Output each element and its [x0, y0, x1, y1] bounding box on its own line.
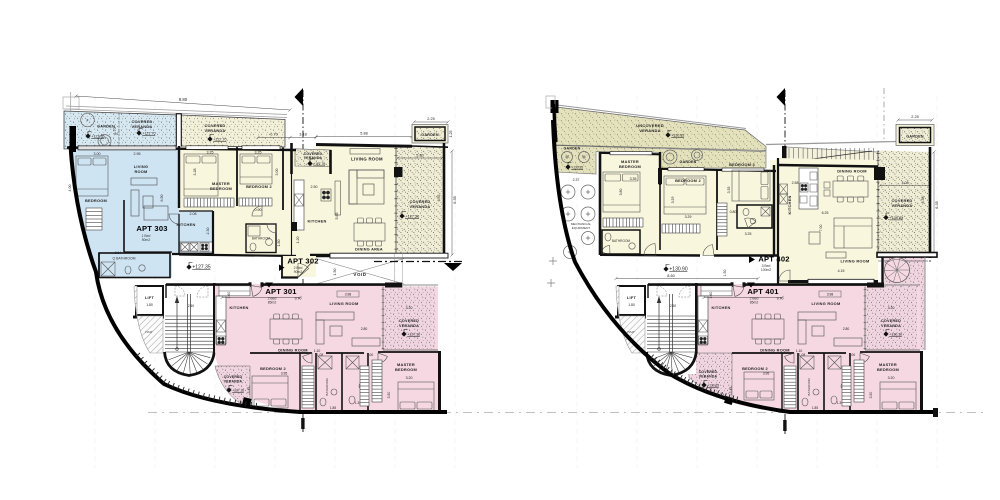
svg-text:2.50: 2.50 [311, 185, 318, 189]
svg-text:9.70: 9.70 [777, 297, 784, 301]
svg-text:BATHROOM: BATHROOM [252, 237, 271, 241]
svg-text:+130.95: +130.95 [671, 133, 684, 137]
svg-text:LIVING ROOM: LIVING ROOM [841, 259, 870, 264]
svg-text:3.45: 3.45 [729, 387, 733, 394]
svg-text:3.29: 3.29 [685, 215, 692, 219]
svg-text:LIFT: LIFT [627, 295, 637, 300]
svg-text:+127.70: +127.70 [313, 162, 325, 166]
svg-text:APT 302: APT 302 [287, 257, 318, 266]
svg-text:3.35: 3.35 [727, 187, 731, 194]
svg-text:6.35: 6.35 [437, 195, 441, 202]
svg-text:9.80: 9.80 [179, 97, 188, 102]
svg-text:APT 303: APT 303 [136, 224, 167, 233]
svg-text:BEDROOM: BEDROOM [395, 367, 417, 372]
svg-text:BEDROOM: BEDROOM [619, 164, 641, 169]
svg-text:VERANDA: VERANDA [205, 128, 226, 133]
svg-text:5.80: 5.80 [416, 153, 423, 157]
svg-text:Q BATHROOM: Q BATHROOM [113, 257, 136, 261]
svg-text:3.25: 3.25 [745, 232, 752, 236]
svg-text:BEDROOM: BEDROOM [210, 186, 232, 191]
svg-text:VERANDA: VERANDA [881, 324, 901, 328]
svg-text:8.60: 8.60 [667, 274, 674, 278]
svg-text:LIVING ROOM: LIVING ROOM [330, 301, 359, 306]
svg-text:+130.30: +130.30 [889, 332, 902, 336]
svg-text:BEDROOM 2: BEDROOM 2 [742, 366, 768, 371]
svg-text:3.45: 3.45 [247, 387, 251, 394]
svg-text:KITCHEN: KITCHEN [229, 305, 248, 310]
svg-text:2.25: 2.25 [911, 115, 918, 119]
svg-text:2.30: 2.30 [206, 228, 210, 235]
svg-text:1.50: 1.50 [723, 270, 727, 277]
svg-text:KITCHEN: KITCHEN [176, 222, 195, 227]
svg-text:BEDROOM: BEDROOM [85, 198, 107, 203]
svg-text:3.18: 3.18 [299, 133, 306, 137]
svg-text:5.88: 5.88 [360, 132, 367, 136]
svg-text:VERANDA: VERANDA [410, 204, 431, 209]
svg-text:LIFT: LIFT [145, 295, 155, 300]
svg-text:2.70: 2.70 [113, 127, 117, 134]
svg-text:3.20: 3.20 [888, 376, 895, 380]
svg-text:APT 301: APT 301 [265, 287, 297, 296]
svg-text:1.80: 1.80 [277, 240, 281, 247]
svg-text:GARDEN: GARDEN [421, 133, 439, 137]
svg-text:3.20: 3.20 [406, 376, 413, 380]
svg-text:6.38: 6.38 [921, 197, 925, 204]
svg-text:3.28: 3.28 [193, 169, 197, 176]
svg-text:3.00: 3.00 [275, 169, 279, 176]
svg-text:2.50: 2.50 [188, 304, 194, 308]
svg-text:1.85: 1.85 [330, 406, 336, 410]
svg-text:GARDEN: GARDEN [906, 134, 924, 138]
svg-text:1.85: 1.85 [812, 406, 818, 410]
svg-text:DINING ROOM: DINING ROOM [837, 169, 867, 174]
svg-text:+127.70: +127.70 [213, 137, 226, 141]
svg-text:2.95: 2.95 [134, 152, 141, 156]
svg-text:7.00: 7.00 [819, 225, 823, 232]
svg-text:COVERED: COVERED [881, 319, 901, 323]
svg-text:DINING ROOM: DINING ROOM [760, 348, 790, 353]
svg-text:VERANDA: VERANDA [399, 324, 419, 328]
svg-text:0.70: 0.70 [270, 133, 277, 137]
svg-text:6.50: 6.50 [160, 195, 164, 202]
svg-text:3.98: 3.98 [827, 293, 834, 297]
svg-text:3.00: 3.00 [94, 152, 101, 156]
svg-text:BEDROOM 2: BEDROOM 2 [675, 178, 701, 183]
svg-text:COVERED: COVERED [224, 375, 243, 379]
svg-text:3.35: 3.35 [630, 177, 637, 181]
svg-text:3.20: 3.20 [888, 306, 895, 310]
svg-text:VOID: VOID [353, 272, 366, 277]
svg-text:APT 401: APT 401 [747, 287, 779, 296]
svg-text:3.25: 3.25 [255, 150, 262, 154]
svg-text:2.08: 2.08 [190, 212, 197, 216]
svg-text:3.08: 3.08 [902, 181, 909, 185]
svg-text:1.80: 1.80 [628, 303, 635, 307]
svg-text:GARDEN: GARDEN [679, 160, 696, 164]
svg-text:0.80: 0.80 [730, 210, 737, 214]
svg-text:6.35: 6.35 [935, 201, 939, 208]
svg-text:5.85: 5.85 [335, 213, 339, 220]
svg-text:3.29: 3.29 [671, 197, 675, 204]
svg-text:2.80: 2.80 [361, 327, 368, 331]
svg-text:ΠΛΑΤ: ΠΛΑΤ [627, 330, 635, 334]
svg-text:COVERED: COVERED [699, 370, 718, 374]
svg-text:GARDEN: GARDEN [563, 147, 580, 151]
svg-text:9.70: 9.70 [295, 297, 302, 301]
svg-text:1.20: 1.20 [296, 237, 300, 244]
svg-text:BEDROOM 2: BEDROOM 2 [260, 366, 286, 371]
svg-text:BATHROOM: BATHROOM [325, 378, 329, 396]
svg-text:VERANDA: VERANDA [892, 203, 913, 208]
svg-text:EQUIPMENT: EQUIPMENT [572, 226, 591, 230]
svg-text:2.37: 2.37 [573, 178, 580, 182]
svg-text:2.50: 2.50 [670, 304, 676, 308]
svg-text:2.58: 2.58 [792, 181, 799, 185]
svg-text:VERANDA: VERANDA [304, 156, 323, 160]
svg-text:6.25: 6.25 [822, 211, 829, 215]
svg-text:BEDROOM 2: BEDROOM 2 [246, 184, 272, 189]
svg-text:85m2: 85m2 [268, 301, 277, 305]
svg-text:VERANDA: VERANDA [639, 128, 661, 133]
svg-text:KITCHEN: KITCHEN [711, 305, 730, 310]
svg-text:85m2: 85m2 [750, 301, 759, 305]
svg-text:3.95: 3.95 [281, 372, 288, 376]
svg-text:1.50: 1.50 [333, 269, 337, 276]
svg-text:BATHROOM: BATHROOM [612, 239, 631, 243]
svg-text:6.35: 6.35 [453, 196, 457, 203]
svg-text:2.80: 2.80 [843, 327, 850, 331]
svg-text:+127.35: +127.35 [91, 134, 104, 138]
svg-text:1.25: 1.25 [449, 131, 453, 138]
svg-text:+127.15: +127.15 [232, 388, 244, 392]
svg-text:+130.65: +130.65 [707, 383, 719, 387]
svg-text:4.15: 4.15 [838, 269, 845, 273]
svg-text:90m2: 90m2 [294, 270, 303, 274]
svg-text:ROOM: ROOM [134, 169, 147, 174]
svg-text:DINING AREA: DINING AREA [355, 248, 383, 252]
svg-text:VERANDA: VERANDA [224, 380, 243, 384]
svg-text:DINING ROOM: DINING ROOM [278, 348, 308, 353]
svg-text:4.00: 4.00 [68, 185, 72, 192]
svg-text:ΠΛΑΤ: ΠΛΑΤ [145, 330, 153, 334]
svg-text:+127.30: +127.30 [407, 332, 420, 336]
svg-text:3.50: 3.50 [869, 392, 873, 399]
svg-text:2.25: 2.25 [427, 117, 434, 121]
svg-text:LIVING ROOM: LIVING ROOM [812, 301, 841, 306]
svg-text:3.98: 3.98 [345, 293, 352, 297]
svg-text:LIVING ROOM: LIVING ROOM [351, 157, 383, 162]
svg-text:+130.95: +130.95 [571, 165, 583, 169]
svg-text:+127.70: +127.70 [142, 131, 155, 135]
svg-text:+130.85: +130.85 [889, 216, 903, 220]
svg-text:BEDROOM: BEDROOM [877, 367, 899, 372]
svg-text:50m2: 50m2 [142, 238, 151, 242]
svg-text:BATHROOM: BATHROOM [807, 378, 811, 396]
svg-text:100m2: 100m2 [761, 268, 771, 272]
svg-text:VERANDA: VERANDA [699, 375, 718, 379]
svg-text:3.80: 3.80 [619, 189, 623, 196]
svg-text:APT 402: APT 402 [758, 255, 789, 264]
svg-text:COVERED: COVERED [399, 319, 419, 323]
svg-text:3.50: 3.50 [387, 392, 391, 399]
svg-text:2.64: 2.64 [115, 251, 122, 255]
svg-text:3.25: 3.25 [207, 150, 214, 154]
svg-text:+127.30: +127.30 [405, 214, 419, 218]
svg-text:+127.35: +127.35 [192, 264, 210, 270]
svg-text:KITCHEN: KITCHEN [307, 219, 326, 224]
svg-text:BEDROOM 3: BEDROOM 3 [729, 162, 755, 167]
svg-text:1.80: 1.80 [146, 303, 153, 307]
svg-text:3.20: 3.20 [406, 306, 413, 310]
svg-text:+130.90: +130.90 [669, 266, 687, 272]
svg-text:3.95: 3.95 [763, 372, 770, 376]
